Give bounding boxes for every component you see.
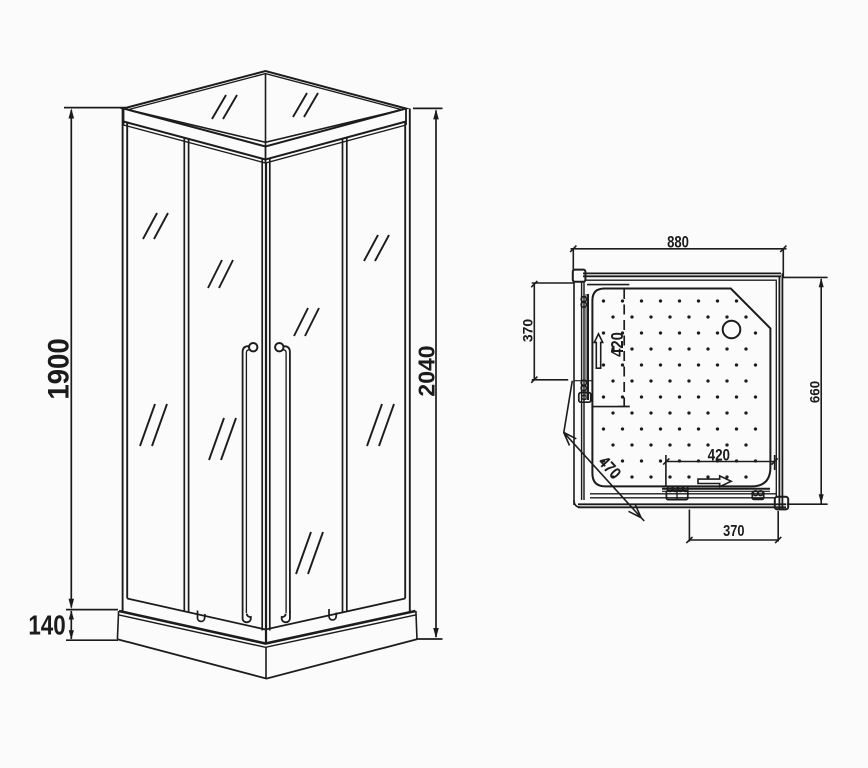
svg-text:420: 420 xyxy=(608,332,627,357)
svg-text:660: 660 xyxy=(807,381,822,404)
svg-text:470: 470 xyxy=(594,453,624,483)
svg-text:370: 370 xyxy=(723,523,744,541)
svg-text:140: 140 xyxy=(28,610,65,641)
svg-text:370: 370 xyxy=(520,319,536,343)
svg-text:420: 420 xyxy=(708,446,730,465)
svg-text:2040: 2040 xyxy=(414,345,440,396)
svg-text:880: 880 xyxy=(667,233,689,252)
svg-text:1900: 1900 xyxy=(42,338,75,399)
